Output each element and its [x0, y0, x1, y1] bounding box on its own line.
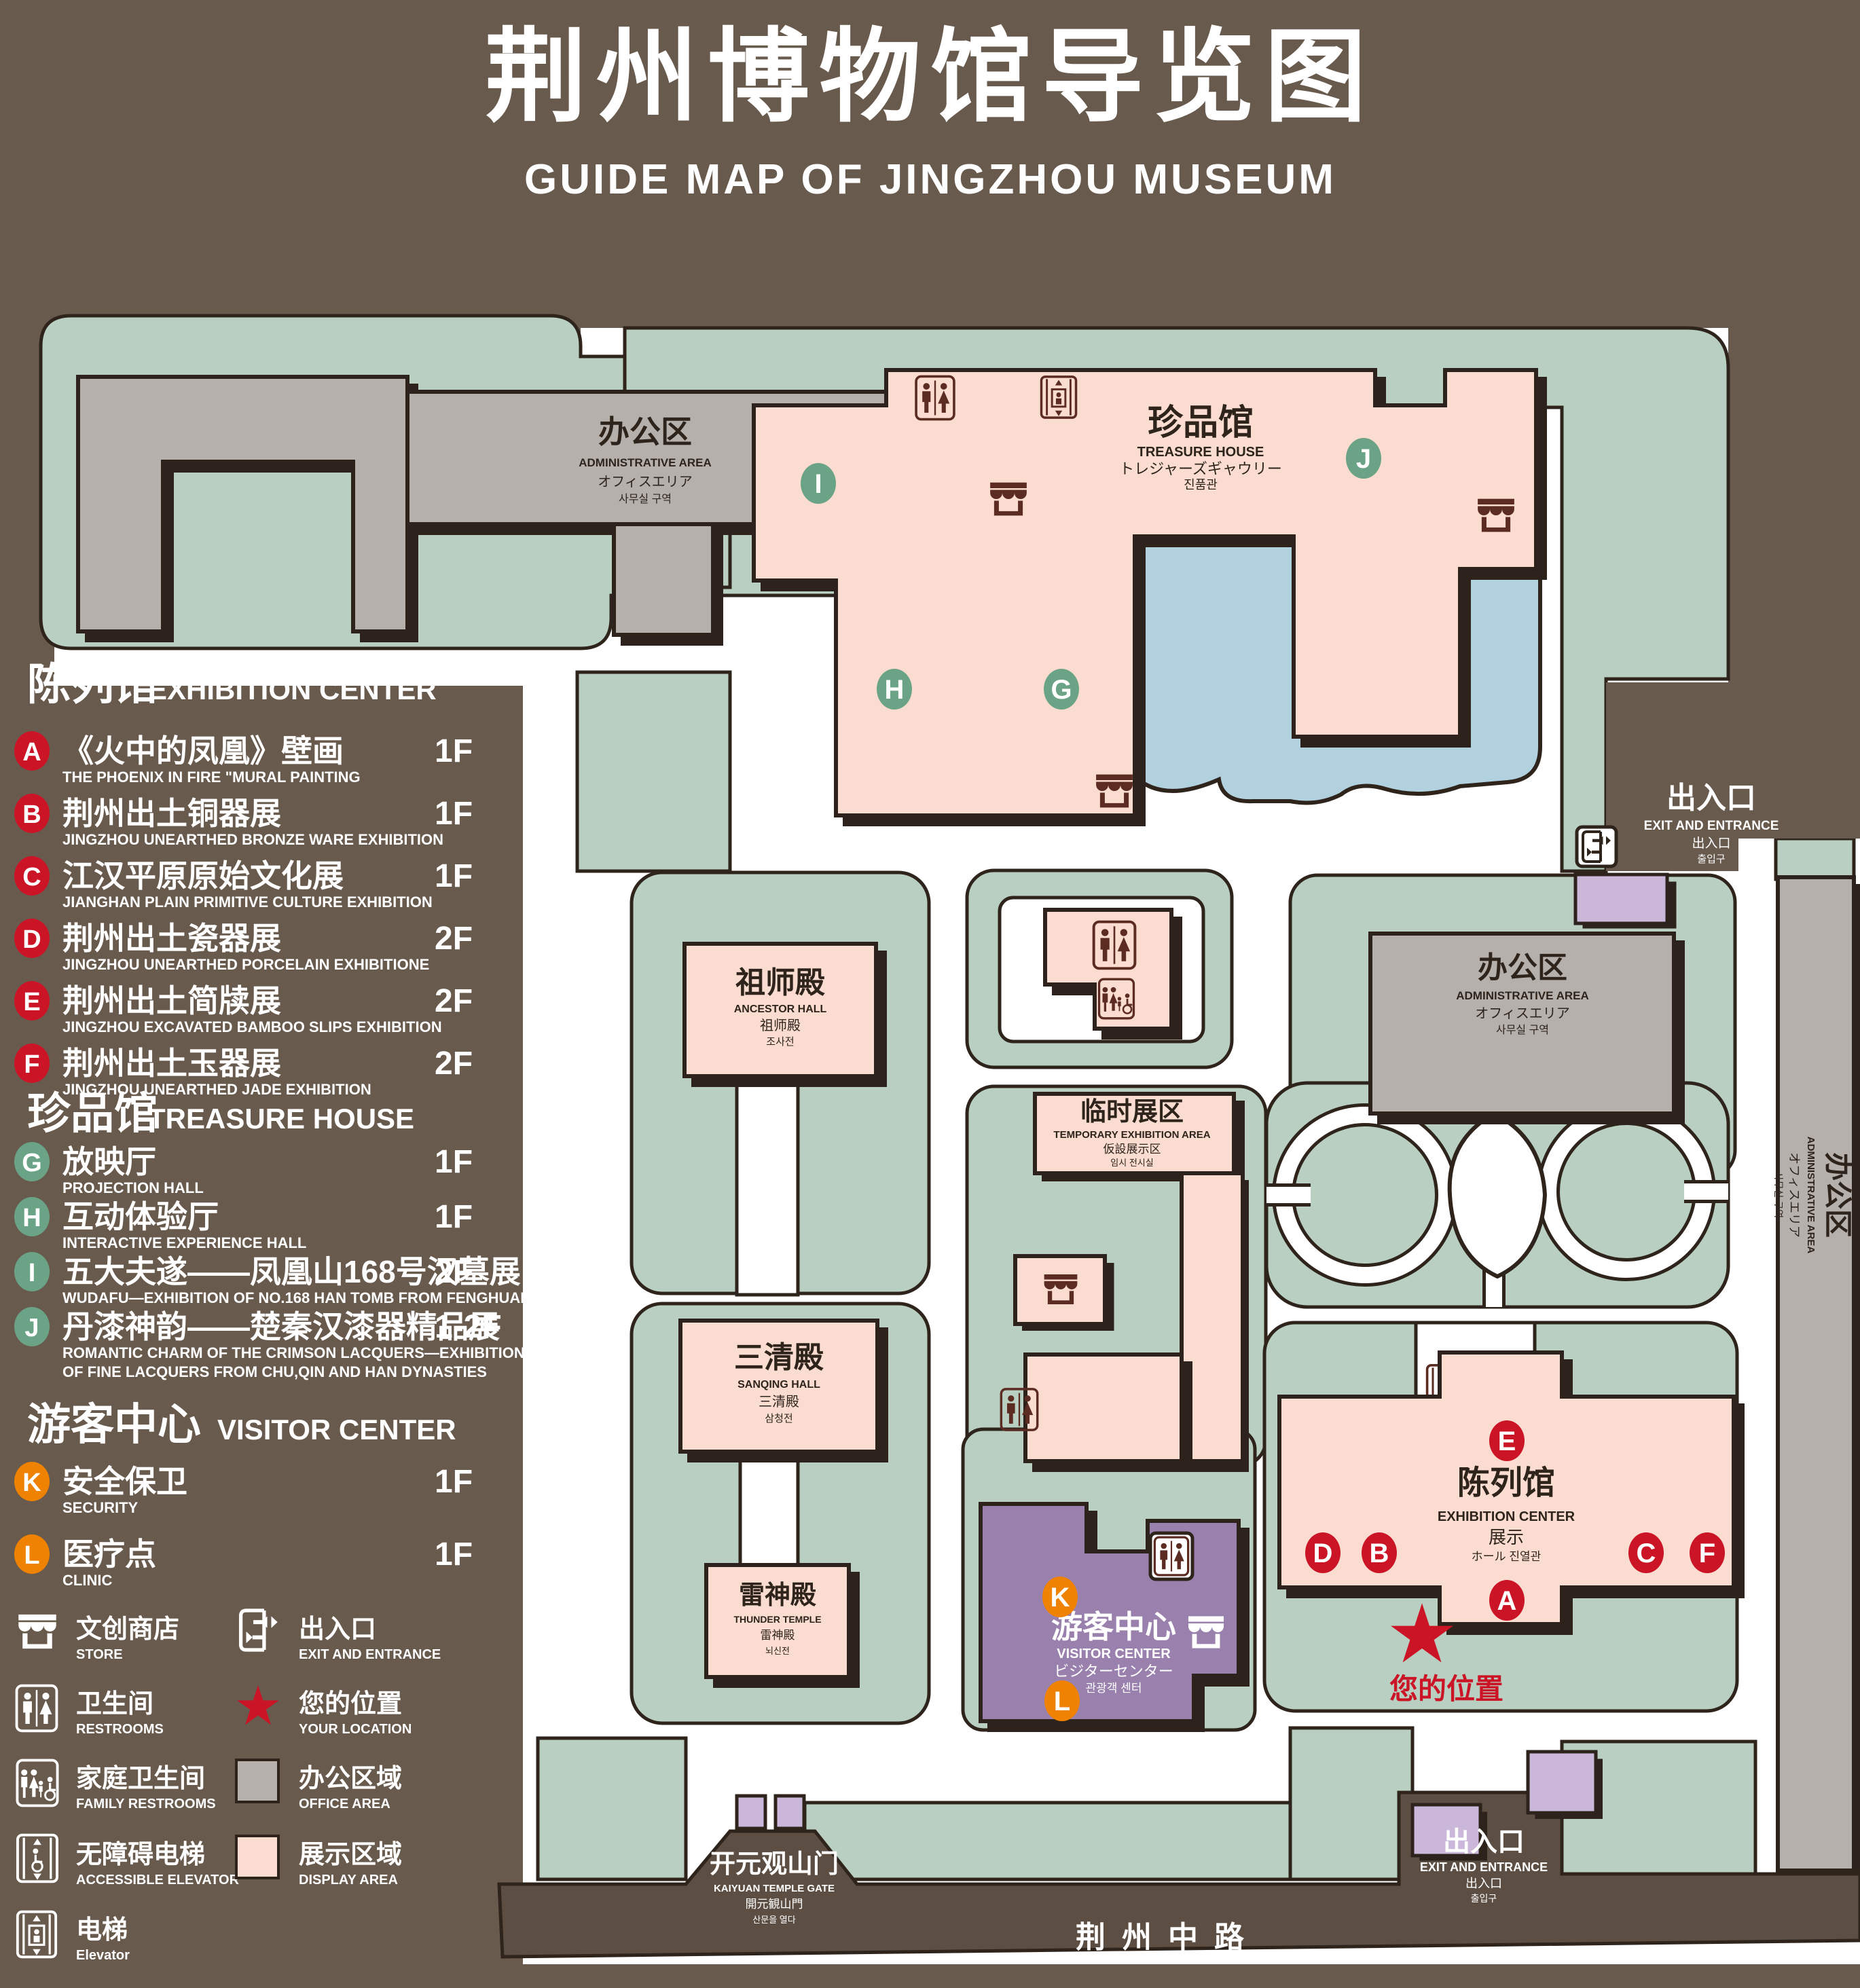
visitor-label-kr: 관광객 센터 — [1086, 1682, 1142, 1695]
svg-text:互动体验厅: 互动体验厅 — [62, 1199, 219, 1234]
office-area-swatch — [236, 1760, 278, 1802]
temporary-label-cn: 临时展区 — [1080, 1098, 1184, 1126]
legend-section-visitor-cn: 游客中心 — [27, 1400, 201, 1449]
exit-right-pavilion — [1575, 875, 1667, 923]
svg-text:D: D — [22, 925, 41, 954]
svg-text:荆州出土玉器展: 荆州出土玉器展 — [62, 1046, 281, 1081]
svg-text:DISPLAY AREA: DISPLAY AREA — [299, 1873, 398, 1888]
svg-text:F: F — [24, 1050, 39, 1079]
gate-label-cn: 开元观山门 — [710, 1850, 839, 1879]
exit-right-label-cn: 出入口 — [1666, 781, 1756, 815]
svg-text:K: K — [1051, 1583, 1070, 1613]
svg-text:PROJECTION HALL: PROJECTION HALL — [62, 1179, 204, 1196]
svg-text:JINGZHOU UNEARTHED PORCELAIN E: JINGZHOU UNEARTHED PORCELAIN EXHIBITIONE — [62, 956, 429, 973]
svg-text:E: E — [1498, 1426, 1516, 1456]
svg-text:安全保卫: 安全保卫 — [62, 1464, 187, 1499]
svg-text:A: A — [22, 738, 41, 767]
thunder-label-cn2: 雷神殿 — [761, 1629, 795, 1642]
exit-bottom-pavilion — [1528, 1752, 1596, 1813]
sanqing-hall-building: 三清殿 SANQING HALL 三清殿 삼청전 — [680, 1321, 877, 1452]
admin-right-building: 办公区 ADMINISTRATIVE AREA オフィスエリア 사무실 구역 — [1370, 934, 1674, 1113]
gate-pavilion — [737, 1796, 765, 1828]
map-marker-K: K — [1042, 1577, 1078, 1617]
ancestor-hall-building: 祖师殿 ANCESTOR HALL 祖师殿 조사전 — [685, 944, 876, 1076]
svg-text:H: H — [885, 675, 905, 705]
exhibition-label-cn: 陈列馆 — [1457, 1465, 1555, 1501]
page-subtitle: GUIDE MAP OF JINGZHOU MUSEUM — [524, 156, 1336, 203]
svg-text:B: B — [1370, 1539, 1389, 1568]
page-title: 荆州博物馆导览图 — [485, 20, 1376, 134]
admin-nw-label-en: ADMINISTRATIVE AREA — [579, 456, 712, 469]
svg-text:1F: 1F — [435, 796, 473, 832]
gate-label-jp: 開元観山門 — [746, 1898, 803, 1911]
admin-nw-label-kr: 사무실 구역 — [619, 493, 672, 505]
svg-text:WUDAFU—EXHIBITION OF NO.168 HA: WUDAFU—EXHIBITION OF NO.168 HAN TOMB FRO… — [62, 1289, 585, 1306]
legend-section-treasure-cn: 珍品馆 — [27, 1089, 158, 1138]
location-label: 您的位置 — [1389, 1673, 1503, 1705]
exit-bottom-label-cn: 出入口 — [1443, 1827, 1525, 1857]
map-marker-F: F — [1690, 1532, 1725, 1573]
thunder-temple-building: 雷神殿 THUNDER TEMPLE 雷神殿 뇌신전 — [706, 1565, 849, 1677]
svg-text:卫生间: 卫生间 — [76, 1690, 153, 1718]
ancestor-label-cn2: 祖师殿 — [760, 1018, 801, 1033]
svg-text:1-2F: 1-2F — [435, 1309, 502, 1345]
svg-text:L: L — [1054, 1687, 1070, 1716]
svg-text:《火中的凤凰》壁画: 《火中的凤凰》壁画 — [62, 733, 344, 769]
admin-strip-label-kr: 사무실 구역 — [1773, 1172, 1784, 1218]
svg-text:C: C — [22, 863, 41, 891]
lawn-gate-west — [538, 1738, 686, 1879]
exit-bottom-label-en: EXIT AND ENTRANCE — [1420, 1860, 1548, 1874]
temporary-label-kr: 임시 전시실 — [1110, 1158, 1153, 1168]
svg-text:EXIT AND ENTRANCE: EXIT AND ENTRANCE — [299, 1647, 441, 1662]
svg-text:2F: 2F — [435, 921, 473, 957]
svg-text:I: I — [814, 469, 822, 499]
map-marker-C: C — [1628, 1532, 1664, 1573]
location-star-icon: ★ — [234, 1676, 282, 1736]
svg-text:文创商店: 文创商店 — [76, 1615, 179, 1644]
treasure-label-cn: 珍品馆 — [1148, 403, 1254, 443]
svg-text:L: L — [24, 1541, 39, 1570]
map-marker-E: E — [1489, 1420, 1525, 1461]
map-marker-D: D — [1305, 1532, 1341, 1573]
sanqing-label-cn: 三清殿 — [734, 1341, 824, 1374]
ancestor-label-cn: 祖师殿 — [735, 966, 825, 999]
lawn-east-strip — [1776, 839, 1854, 879]
svg-text:家庭卫生间: 家庭卫生间 — [76, 1764, 205, 1793]
admin-right-label-jp: オフィスエリア — [1475, 1006, 1570, 1021]
svg-text:OF FINE LACQUERS FROM CHU,QIN: OF FINE LACQUERS FROM CHU,QIN AND HAN DY… — [62, 1363, 487, 1380]
svg-text:您的位置: 您的位置 — [299, 1690, 402, 1718]
svg-text:江汉平原原始文化展: 江汉平原原始文化展 — [62, 858, 344, 894]
svg-text:2F: 2F — [435, 983, 473, 1019]
elevator-icon — [1041, 377, 1076, 418]
svg-text:B: B — [22, 800, 41, 829]
svg-text:荆州出土简牍展: 荆州出土简牍展 — [62, 983, 281, 1018]
svg-text:OFFICE AREA: OFFICE AREA — [299, 1797, 390, 1811]
sanqing-label-kr: 삼청전 — [765, 1413, 792, 1424]
legend-item-J: J 丹漆神韵——楚秦汉漆器精品展 1-2F ROMANTIC CHARM OF … — [14, 1307, 534, 1380]
svg-text:ROMANTIC CHARM OF THE CRIMSON: ROMANTIC CHARM OF THE CRIMSON LACQUERS—E… — [62, 1344, 534, 1361]
svg-text:INTERACTIVE EXPERIENCE HALL: INTERACTIVE EXPERIENCE HALL — [62, 1234, 306, 1251]
lawn-south-1 — [1290, 1728, 1412, 1879]
svg-text:JIANGHAN PLAIN PRIMITIVE CULTU: JIANGHAN PLAIN PRIMITIVE CULTURE EXHIBIT… — [62, 894, 433, 910]
svg-text:电梯: 电梯 — [76, 1916, 128, 1945]
admin-strip-building: 办公区 ADMINISTRATIVE AREA オフィスエリア 사무실 구역 — [1773, 877, 1854, 1871]
exit-bottom-label-kr: 출입구 — [1471, 1893, 1497, 1904]
ancestor-court-corridor — [737, 1076, 798, 1295]
elevator-icon — [18, 1912, 56, 1957]
admin-strip-label-cn: 办公区 — [1822, 1152, 1854, 1238]
thunder-label-en: THUNDER TEMPLE — [733, 1614, 821, 1625]
sanqing-label-cn2: 三清殿 — [759, 1394, 799, 1410]
svg-text:Elevator: Elevator — [76, 1948, 130, 1963]
svg-text:FAMILY RESTROOMS: FAMILY RESTROOMS — [76, 1797, 216, 1811]
map-marker-G: G — [1044, 669, 1079, 710]
svg-text:I: I — [29, 1259, 36, 1287]
admin-right-label-kr: 사무실 구역 — [1496, 1024, 1549, 1036]
map-marker-B: B — [1362, 1532, 1397, 1573]
temporary-label-jp: 仮設展示区 — [1104, 1143, 1161, 1156]
svg-text:1F: 1F — [435, 1199, 473, 1235]
treasure-label-kr: 진품관 — [1184, 478, 1218, 492]
exit-right-label-jp: 出入口 — [1692, 836, 1730, 851]
admin-strip-label-jp: オフィスエリア — [1787, 1152, 1801, 1238]
legend-item-I: I 五大夫遂——凤凰山168号汉墓展 2F WUDAFU—EXHIBITION … — [14, 1252, 585, 1306]
gate-pavilion — [776, 1796, 804, 1828]
admin-right-label-cn: 办公区 — [1478, 951, 1567, 984]
svg-text:J: J — [1356, 444, 1371, 474]
svg-text:医疗点: 医疗点 — [62, 1536, 156, 1572]
svg-text:C: C — [1637, 1539, 1656, 1568]
svg-text:展示区域: 展示区域 — [299, 1841, 402, 1869]
svg-text:JINGZHOU UNEARTHED BRONZE WARE: JINGZHOU UNEARTHED BRONZE WARE EXHIBITIO… — [62, 831, 443, 848]
svg-text:F: F — [1699, 1539, 1715, 1568]
svg-text:办公区域: 办公区域 — [299, 1765, 402, 1793]
svg-text:1F: 1F — [435, 733, 473, 769]
svg-text:J: J — [24, 1314, 39, 1342]
exhibition-label-l4: ホール 진열관 — [1472, 1550, 1542, 1563]
sanqing-court-corridor — [740, 1452, 798, 1565]
svg-text:无障碍电梯: 无障碍电梯 — [76, 1841, 205, 1869]
admin-strip-label-en: ADMINISTRATIVE AREA — [1805, 1137, 1817, 1254]
svg-text:JINGZHOU EXCAVATED BAMBOO SLIP: JINGZHOU EXCAVATED BAMBOO SLIPS EXHIBITI… — [62, 1018, 442, 1035]
gate-label-en: KAIYUAN TEMPLE GATE — [714, 1883, 835, 1894]
thunder-label-cn: 雷神殿 — [739, 1581, 816, 1610]
svg-text:YOUR LOCATION: YOUR LOCATION — [299, 1722, 412, 1737]
treasure-label-en: TREASURE HOUSE — [1137, 445, 1264, 460]
svg-text:ACCESSIBLE ELEVATOR: ACCESSIBLE ELEVATOR — [76, 1873, 240, 1888]
map-marker-H: H — [877, 669, 912, 710]
svg-text:H: H — [22, 1204, 41, 1232]
svg-text:G: G — [1051, 675, 1072, 705]
svg-text:1F: 1F — [435, 1536, 473, 1572]
gate-label-kr: 산문을 열다 — [752, 1915, 795, 1925]
svg-text:出入口: 出入口 — [299, 1615, 376, 1644]
svg-text:荆州出土铜器展: 荆州出土铜器展 — [62, 796, 281, 831]
exit-right-label-en: EXIT AND ENTRANCE — [1644, 819, 1779, 833]
svg-text:A: A — [1497, 1586, 1517, 1616]
thunder-label-kr: 뇌신전 — [765, 1646, 790, 1656]
ancestor-label-en: ANCESTOR HALL — [734, 1004, 827, 1015]
legend-section-exhibition-en: EXHIBITION CENTER — [148, 674, 437, 705]
svg-text:荆州出土瓷器展: 荆州出土瓷器展 — [62, 921, 281, 956]
temporary-label-en: TEMPORARY EXHIBITION AREA — [1053, 1129, 1210, 1141]
guide-map-poster: 荆州博物馆导览图 GUIDE MAP OF JINGZHOU MUSEUM — [0, 0, 1860, 1988]
svg-text:CLINIC: CLINIC — [62, 1572, 112, 1589]
legend-section-exhibition-cn: 陈列馆 — [27, 660, 158, 709]
svg-text:1F: 1F — [435, 1144, 473, 1180]
admin-right-label-en: ADMINISTRATIVE AREA — [1456, 989, 1589, 1002]
display-area-swatch — [236, 1836, 278, 1878]
admin-nw-label-cn: 办公区 — [598, 414, 692, 449]
lawn-west-strip — [577, 672, 730, 871]
svg-text:1F: 1F — [435, 1464, 473, 1500]
location-star-icon: ★ — [1385, 1589, 1459, 1680]
legend-section-visitor-en: VISITOR CENTER — [217, 1414, 456, 1446]
svg-text:G: G — [22, 1149, 42, 1177]
exhibition-label-en: EXHIBITION CENTER — [1438, 1509, 1575, 1524]
svg-text:1F: 1F — [435, 858, 473, 894]
visitor-label-cn: 游客中心 — [1051, 1609, 1176, 1644]
map-marker-A: A — [1489, 1580, 1525, 1621]
visitor-label-jp: ビジターセンター — [1054, 1663, 1173, 1680]
visitor-label-en: VISITOR CENTER — [1057, 1646, 1171, 1661]
exit-right-label-kr: 출입구 — [1697, 853, 1725, 865]
road-label: 荆州中路 — [1076, 1921, 1260, 1954]
svg-text:2F: 2F — [435, 1046, 473, 1082]
legend-section-treasure-en: TREASURE HOUSE — [148, 1103, 414, 1135]
svg-text:E: E — [23, 988, 40, 1016]
svg-text:SECURITY: SECURITY — [62, 1499, 139, 1516]
exit-bottom-label-jp: 出入口 — [1465, 1877, 1502, 1890]
svg-text:STORE: STORE — [76, 1647, 123, 1662]
sanqing-label-en: SANQING HALL — [737, 1379, 820, 1391]
map-marker-I: I — [801, 463, 836, 504]
ancestor-label-kr: 조사전 — [766, 1036, 794, 1048]
treasure-label-jp: トレジャーズギャウリー — [1119, 460, 1282, 477]
map-marker-J: J — [1346, 438, 1381, 479]
svg-text:K: K — [22, 1469, 41, 1497]
svg-text:2F: 2F — [435, 1254, 473, 1290]
svg-text:D: D — [1313, 1539, 1333, 1568]
admin-nw-label-jp: オフィスエリア — [598, 475, 693, 490]
svg-text:THE PHOENIX IN FIRE "MURAL PAI: THE PHOENIX IN FIRE "MURAL PAINTING — [62, 769, 361, 786]
svg-text:放映厅: 放映厅 — [62, 1144, 156, 1179]
map-marker-L: L — [1044, 1680, 1080, 1721]
svg-text:RESTROOMS: RESTROOMS — [76, 1722, 164, 1737]
exhibition-label-l3: 展示 — [1489, 1527, 1524, 1547]
lawn-gate-east — [805, 1803, 1290, 1879]
